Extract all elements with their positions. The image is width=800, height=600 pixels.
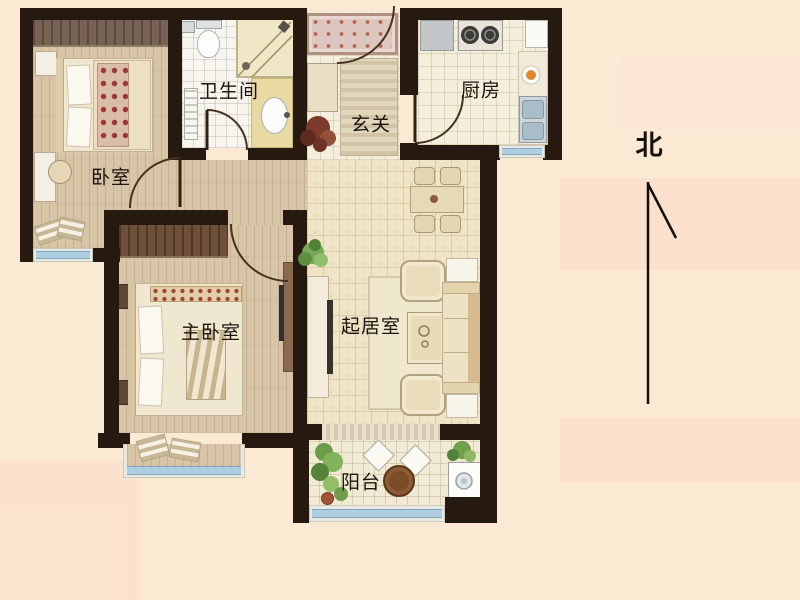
floor-plan-canvas: 卧室 卫生间 玄关 厨房 主卧室 起居室 阳台 北 xyxy=(0,0,800,600)
tea-set xyxy=(419,326,429,347)
stove-burners xyxy=(461,26,499,44)
plan-overlay xyxy=(0,0,800,600)
door-arcs xyxy=(130,6,463,281)
balcony-plant-ne xyxy=(447,441,476,462)
room-label-balcony: 阳台 xyxy=(341,474,381,493)
room-label-bedroom: 卧室 xyxy=(91,169,131,188)
washing-machine-door xyxy=(456,473,472,489)
bathroom-faucet xyxy=(284,112,290,118)
room-label-entry: 玄关 xyxy=(351,116,391,135)
room-label-master-bedroom: 主卧室 xyxy=(181,324,241,343)
living-room-plant xyxy=(298,239,328,267)
entry-plant xyxy=(300,116,336,152)
bedroom-door-arc xyxy=(130,158,180,208)
north-arrow xyxy=(648,182,676,404)
master-bedroom-door-arc xyxy=(231,224,288,281)
room-label-living-room: 起居室 xyxy=(341,318,401,337)
front-door-arc xyxy=(337,6,394,63)
kitchen-door-arc xyxy=(415,95,463,143)
bathroom-door-arc xyxy=(207,110,247,150)
shower-detail xyxy=(238,20,292,77)
room-label-bathroom: 卫生间 xyxy=(199,83,259,102)
room-label-kitchen: 厨房 xyxy=(461,82,501,101)
fruit-plate xyxy=(522,66,540,84)
north-label: 北 xyxy=(636,124,663,163)
dining-centerpiece xyxy=(430,195,438,203)
